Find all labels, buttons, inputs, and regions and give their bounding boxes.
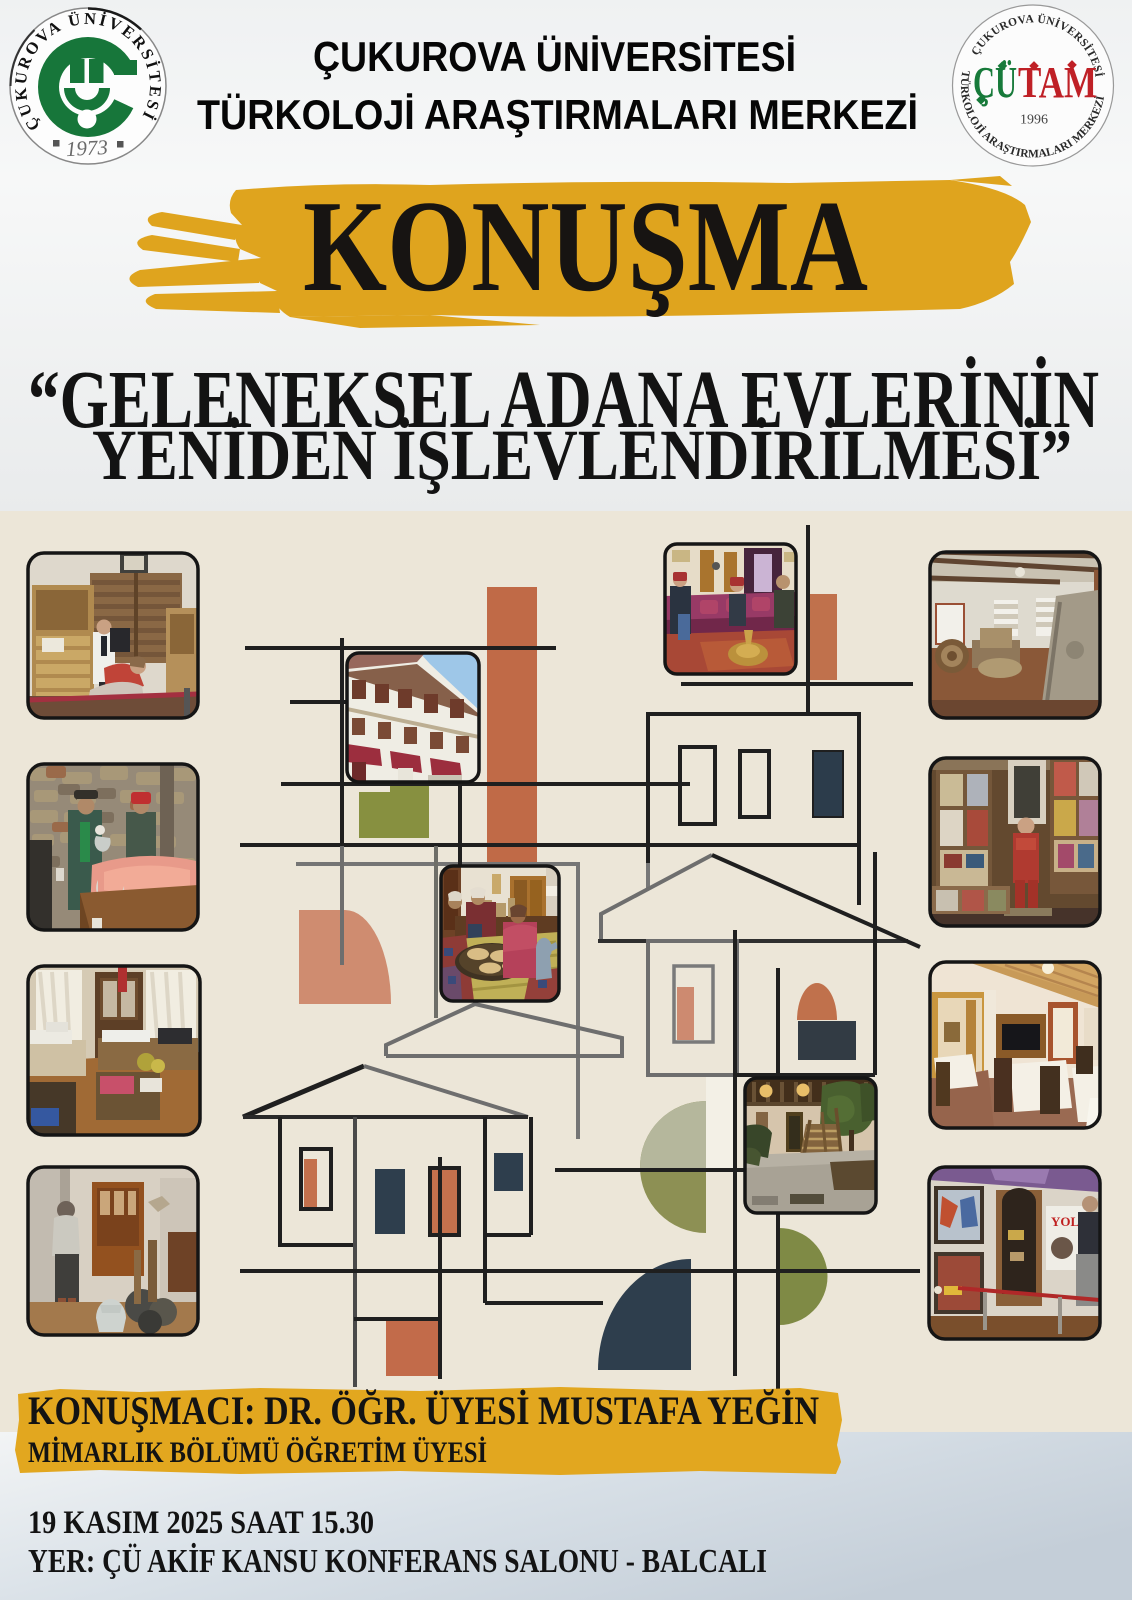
svg-text:1973: 1973	[65, 135, 108, 161]
svg-text:19 KASIM 2025 SAAT 15.30: 19 KASIM 2025 SAAT 15.30	[28, 1505, 374, 1541]
svg-text:KONUŞMA: KONUŞMA	[303, 174, 868, 319]
svg-text:YENİDEN İŞLEVLENDİRİLMESİ”: YENİDEN İŞLEVLENDİRİLMESİ”	[92, 415, 1072, 495]
svg-text:KONUŞMACI: DR. ÖĞR. ÜYESİ MUST: KONUŞMACI: DR. ÖĞR. ÜYESİ MUSTAFA YEĞİN	[28, 1388, 819, 1433]
svg-text:TÜRKOLOJİ ARAŞTIRMALARI MERKEZ: TÜRKOLOJİ ARAŞTIRMALARI MERKEZİ	[197, 91, 918, 138]
svg-text:YOL: YOL	[1051, 1214, 1080, 1229]
svg-text:ÇUKUROVA ÜNİVERSİTESİ: ÇUKUROVA ÜNİVERSİTESİ	[313, 33, 796, 80]
svg-text:1996: 1996	[1020, 113, 1048, 128]
svg-text:MİMARLIK BÖLÜMÜ ÖĞRETİM ÜYESİ: MİMARLIK BÖLÜMÜ ÖĞRETİM ÜYESİ	[28, 1436, 487, 1469]
svg-text:YER: ÇÜ AKİF KANSU KONFERANS S: YER: ÇÜ AKİF KANSU KONFERANS SALONU - BA…	[28, 1542, 767, 1580]
